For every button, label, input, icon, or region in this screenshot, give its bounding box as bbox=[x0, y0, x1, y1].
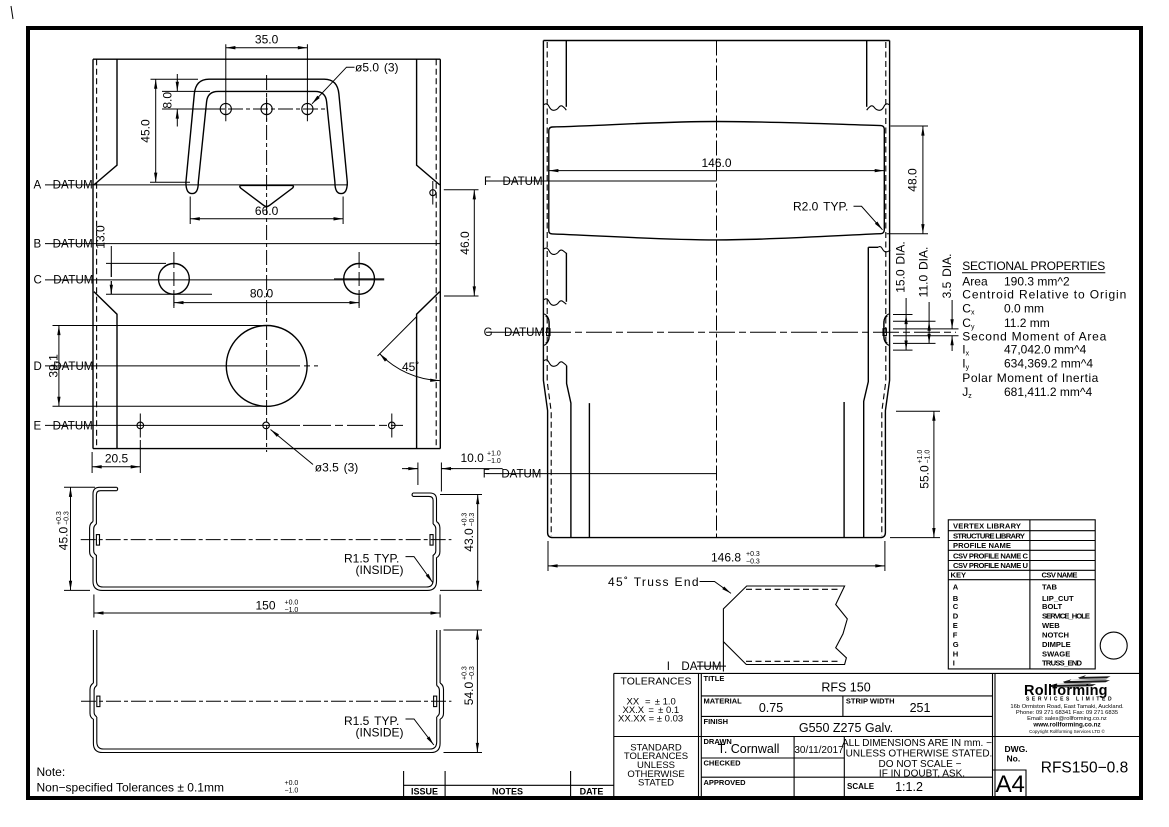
svg-text:150: 150 bbox=[256, 599, 276, 613]
svg-text:54.0: 54.0 bbox=[462, 681, 476, 705]
svg-text:RFS150−0.8: RFS150−0.8 bbox=[1041, 760, 1128, 777]
svg-text:D: D bbox=[953, 612, 959, 621]
svg-text:ø3.5 (3): ø3.5 (3) bbox=[315, 461, 358, 475]
svg-text:10.0: 10.0 bbox=[461, 451, 485, 465]
svg-text:STRUCTURE LIBRARY: STRUCTURE LIBRARY bbox=[953, 531, 1025, 540]
svg-text:−0.3: −0.3 bbox=[746, 559, 760, 566]
svg-text:TITLE: TITLE bbox=[704, 674, 725, 683]
svg-text:+0.3: +0.3 bbox=[56, 511, 63, 525]
svg-text:B DATUM: B DATUM bbox=[34, 238, 93, 250]
svg-text:CHECKED: CHECKED bbox=[704, 758, 742, 767]
svg-text:46.0: 46.0 bbox=[458, 231, 472, 255]
svg-text:C: C bbox=[953, 602, 959, 611]
svg-text:TAB: TAB bbox=[1042, 583, 1058, 592]
svg-text:IF IN DOUBT, ASK.: IF IN DOUBT, ASK. bbox=[879, 769, 965, 780]
svg-text:www.rollforming.co.nz: www.rollforming.co.nz bbox=[1032, 722, 1100, 729]
svg-text:DIMPLE: DIMPLE bbox=[1042, 640, 1071, 649]
svg-text:XX.XX = ± 0.03: XX.XX = ± 0.03 bbox=[618, 713, 683, 724]
svg-text:NOTES: NOTES bbox=[492, 787, 523, 797]
svg-text:−1.0: −1.0 bbox=[285, 607, 299, 614]
svg-text:VERTEX LIBRARY: VERTEX LIBRARY bbox=[953, 522, 1021, 531]
svg-text:+1.0: +1.0 bbox=[487, 451, 501, 458]
svg-text:ISSUE: ISSUE bbox=[411, 787, 438, 797]
svg-text:190.3 mm^2: 190.3 mm^2 bbox=[1004, 274, 1070, 288]
svg-text:APPROVED: APPROVED bbox=[704, 778, 747, 787]
svg-text:A: A bbox=[953, 583, 959, 592]
svg-text:0.0 mm: 0.0 mm bbox=[1004, 302, 1044, 316]
svg-text:30/11/2017: 30/11/2017 bbox=[794, 745, 844, 756]
svg-text:15.0 DIA.: 15.0 DIA. bbox=[894, 241, 908, 293]
svg-text:TRUSS_END: TRUSS_END bbox=[1042, 658, 1083, 667]
svg-text:MATERIAL: MATERIAL bbox=[704, 696, 743, 705]
svg-text:SECTIONAL PROPERTIES: SECTIONAL PROPERTIES bbox=[962, 259, 1105, 273]
svg-text:E DATUM: E DATUM bbox=[34, 420, 93, 432]
svg-text:G550 Z275 Galv.: G550 Z275 Galv. bbox=[799, 721, 893, 735]
svg-text:11.0 DIA.: 11.0 DIA. bbox=[917, 247, 931, 298]
svg-text:(INSIDE): (INSIDE) bbox=[356, 563, 404, 577]
svg-text:PROFILE NAME: PROFILE NAME bbox=[953, 541, 1011, 550]
svg-text:Note:: Note: bbox=[37, 765, 66, 779]
svg-text:SWAGE: SWAGE bbox=[1042, 650, 1070, 659]
svg-text:KEY: KEY bbox=[951, 571, 967, 580]
svg-text:E: E bbox=[953, 621, 958, 630]
svg-text:ALL DIMENSIONS ARE IN mm. −: ALL DIMENSIONS ARE IN mm. − bbox=[842, 738, 992, 749]
svg-text:SERVICES LIMITED: SERVICES LIMITED bbox=[1026, 697, 1114, 703]
svg-text:TOLERANCES: TOLERANCES bbox=[621, 675, 692, 687]
svg-text:+1.0: +1.0 bbox=[917, 450, 924, 464]
svg-text:55.0: 55.0 bbox=[918, 465, 932, 489]
svg-text:CSV PROFILE NAME C: CSV PROFILE NAME C bbox=[953, 551, 1029, 560]
svg-text:FINISH: FINISH bbox=[704, 717, 729, 726]
svg-text:I DATUM: I DATUM bbox=[667, 661, 722, 673]
svg-text:146.0: 146.0 bbox=[701, 156, 731, 170]
svg-text:146.8: 146.8 bbox=[711, 551, 741, 565]
svg-text:35.0: 35.0 bbox=[255, 32, 279, 46]
svg-text:16b Ormiston Road, East Tamaki: 16b Ormiston Road, East Tamaki, Auckland… bbox=[1010, 704, 1124, 710]
svg-text:F: F bbox=[953, 631, 958, 640]
svg-text:20.5: 20.5 bbox=[105, 451, 129, 465]
svg-text:48.0: 48.0 bbox=[906, 168, 920, 192]
svg-text:+0.3: +0.3 bbox=[746, 551, 760, 558]
svg-text:BOLT: BOLT bbox=[1042, 602, 1062, 611]
svg-text:DATE: DATE bbox=[580, 787, 604, 797]
svg-text:WEB: WEB bbox=[1042, 621, 1060, 630]
svg-text:No.: No. bbox=[1007, 754, 1021, 764]
svg-text:+0.0: +0.0 bbox=[285, 600, 299, 607]
svg-text:STATED: STATED bbox=[638, 778, 674, 789]
svg-text:SERVICE_HOLE: SERVICE_HOLE bbox=[1042, 612, 1090, 621]
svg-text:+0.3: +0.3 bbox=[462, 513, 469, 527]
svg-text:Polar Moment of Inertia: Polar Moment of Inertia bbox=[962, 371, 1098, 385]
svg-text:G DATUM: G DATUM bbox=[484, 327, 544, 339]
svg-text:CSV NAME: CSV NAME bbox=[1042, 571, 1078, 580]
svg-text:80.0: 80.0 bbox=[250, 287, 274, 301]
svg-text:Non−specified Tolerances ± 0.1: Non−specified Tolerances ± 0.1mm bbox=[37, 780, 224, 794]
svg-text:F DATUM: F DATUM bbox=[484, 176, 543, 188]
svg-text:−1.0: −1.0 bbox=[925, 450, 932, 464]
svg-text:45˚ Truss End: 45˚ Truss End bbox=[608, 575, 699, 589]
svg-text:634,369.2 mm^4: 634,369.2 mm^4 bbox=[1004, 357, 1093, 371]
svg-text:45˚: 45˚ bbox=[402, 360, 419, 374]
svg-text:11.2 mm: 11.2 mm bbox=[1004, 316, 1050, 330]
svg-text:45.0: 45.0 bbox=[139, 119, 153, 143]
svg-text:45.0: 45.0 bbox=[57, 526, 71, 550]
svg-text:251: 251 bbox=[910, 701, 931, 715]
svg-text:0.75: 0.75 bbox=[759, 701, 783, 715]
svg-text:G: G bbox=[953, 640, 959, 649]
svg-text:8.0: 8.0 bbox=[161, 92, 175, 109]
svg-text:A DATUM: A DATUM bbox=[34, 180, 93, 192]
svg-text:Area: Area bbox=[962, 274, 988, 288]
svg-text:3.5 DIA.: 3.5 DIA. bbox=[940, 254, 954, 299]
svg-text:F DATUM: F DATUM bbox=[483, 468, 542, 480]
svg-text:1:1.2: 1:1.2 bbox=[895, 780, 923, 794]
svg-text:−1.0: −1.0 bbox=[487, 458, 501, 465]
svg-text:43.0: 43.0 bbox=[462, 528, 476, 552]
svg-text:ø5.0 (3): ø5.0 (3) bbox=[355, 61, 398, 75]
svg-text:13.0: 13.0 bbox=[94, 225, 108, 249]
svg-text:−0.3: −0.3 bbox=[64, 511, 71, 525]
svg-text:SCALE: SCALE bbox=[847, 782, 875, 791]
svg-text:I: I bbox=[953, 658, 955, 667]
svg-text:H: H bbox=[953, 650, 958, 659]
svg-text:+0.3: +0.3 bbox=[462, 666, 469, 680]
svg-text:66.0: 66.0 bbox=[255, 204, 279, 218]
svg-text:R2.0 TYP.: R2.0 TYP. bbox=[793, 199, 848, 213]
svg-text:UNLESS OTHERWISE STATED.: UNLESS OTHERWISE STATED. bbox=[846, 748, 993, 759]
svg-text:A4: A4 bbox=[996, 771, 1025, 798]
svg-text:(INSIDE): (INSIDE) bbox=[356, 726, 404, 740]
svg-text:C DATUM: C DATUM bbox=[34, 275, 94, 287]
svg-text:Copyright Rollforming Services: Copyright Rollforming Services LTD © bbox=[1029, 728, 1105, 734]
svg-text:T. Cornwall: T. Cornwall bbox=[718, 742, 780, 756]
svg-text:RFS 150: RFS 150 bbox=[821, 681, 870, 695]
svg-text:47,042.0 mm^4: 47,042.0 mm^4 bbox=[1004, 342, 1087, 356]
svg-text:STRIP WIDTH: STRIP WIDTH bbox=[846, 696, 895, 705]
svg-text:NOTCH: NOTCH bbox=[1042, 631, 1069, 640]
svg-text:D DATUM: D DATUM bbox=[34, 361, 94, 373]
svg-text:DWG.: DWG. bbox=[1005, 744, 1028, 754]
svg-text:+0.0: +0.0 bbox=[285, 780, 299, 787]
svg-text:Second Moment of Area: Second Moment of Area bbox=[962, 329, 1106, 343]
svg-text:Centroid Relative to Origin: Centroid Relative to Origin bbox=[962, 287, 1126, 301]
svg-text:−0.3: −0.3 bbox=[469, 666, 476, 680]
svg-text:−0.3: −0.3 bbox=[469, 513, 476, 527]
svg-text:−1.0: −1.0 bbox=[285, 788, 299, 795]
svg-text:39.1: 39.1 bbox=[47, 354, 61, 378]
svg-text:681,411.2 mm^4: 681,411.2 mm^4 bbox=[1004, 385, 1092, 399]
svg-text:CSV PROFILE NAME U: CSV PROFILE NAME U bbox=[953, 561, 1029, 570]
